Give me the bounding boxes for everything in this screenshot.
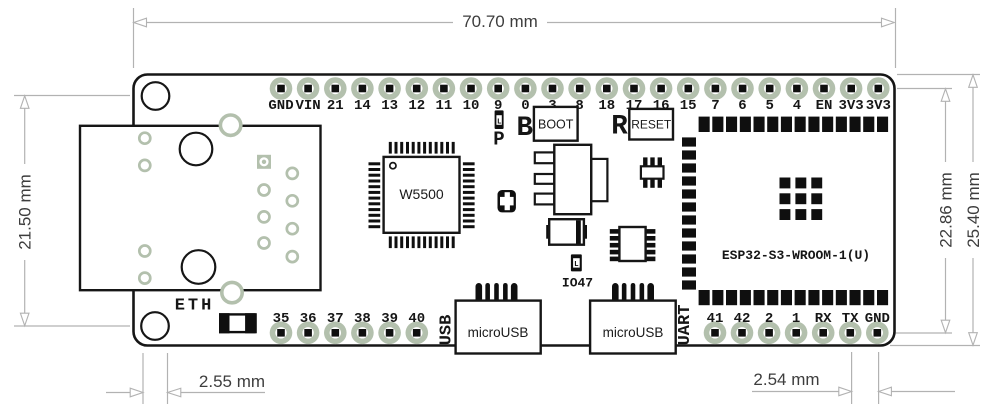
- svg-text:11: 11: [435, 98, 452, 114]
- svg-text:36: 36: [300, 311, 317, 327]
- svg-text:21: 21: [327, 98, 344, 114]
- svg-text:R: R: [611, 112, 628, 143]
- svg-text:10: 10: [463, 98, 480, 114]
- svg-text:TX: TX: [842, 311, 859, 327]
- svg-text:GND: GND: [268, 98, 293, 114]
- svg-text:W5500: W5500: [399, 186, 444, 202]
- svg-text:P: P: [493, 129, 504, 151]
- svg-text:35: 35: [273, 311, 290, 327]
- svg-text:EN: EN: [816, 98, 833, 114]
- svg-text:15: 15: [680, 98, 697, 114]
- svg-text:14: 14: [354, 98, 371, 114]
- svg-text:0: 0: [521, 98, 529, 114]
- svg-text:6: 6: [738, 98, 746, 114]
- svg-text:1: 1: [792, 311, 800, 327]
- svg-text:microUSB: microUSB: [603, 325, 664, 340]
- svg-text:3V3: 3V3: [838, 98, 863, 114]
- svg-text:38: 38: [354, 311, 371, 327]
- svg-text:4: 4: [793, 98, 801, 114]
- svg-text:UART: UART: [676, 305, 695, 346]
- svg-text:L: L: [574, 261, 579, 269]
- svg-text:ESP32-S3-WROOM-1(U): ESP32-S3-WROOM-1(U): [722, 248, 870, 263]
- svg-text:12: 12: [408, 98, 425, 114]
- svg-text:VIN: VIN: [295, 98, 320, 114]
- svg-text:42: 42: [734, 311, 751, 327]
- svg-text:2: 2: [765, 311, 773, 327]
- svg-text:5: 5: [765, 98, 773, 114]
- svg-text:RX: RX: [815, 311, 832, 327]
- svg-text:B: B: [517, 113, 534, 144]
- svg-text:39: 39: [381, 311, 398, 327]
- svg-text:25.40 mm: 25.40 mm: [964, 172, 983, 248]
- svg-text:37: 37: [327, 311, 344, 327]
- svg-text:2.54 mm: 2.54 mm: [753, 370, 819, 389]
- svg-text:L: L: [497, 118, 502, 126]
- svg-text:GND: GND: [865, 311, 890, 327]
- svg-text:2.55 mm: 2.55 mm: [199, 372, 265, 391]
- svg-text:70.70 mm: 70.70 mm: [462, 12, 538, 31]
- svg-text:7: 7: [711, 98, 719, 114]
- svg-text:41: 41: [707, 311, 724, 327]
- svg-text:BOOT: BOOT: [538, 117, 574, 131]
- svg-text:3V3: 3V3: [866, 98, 891, 114]
- svg-text:ETH: ETH: [175, 297, 215, 316]
- svg-text:RESET: RESET: [631, 118, 672, 132]
- svg-text:22.86 mm: 22.86 mm: [937, 172, 956, 248]
- svg-text:40: 40: [408, 311, 425, 327]
- svg-text:IO47: IO47: [562, 275, 593, 290]
- svg-text:USB: USB: [438, 315, 457, 346]
- svg-text:13: 13: [381, 98, 398, 114]
- svg-text:microUSB: microUSB: [468, 325, 529, 340]
- svg-text:21.50 mm: 21.50 mm: [16, 174, 35, 250]
